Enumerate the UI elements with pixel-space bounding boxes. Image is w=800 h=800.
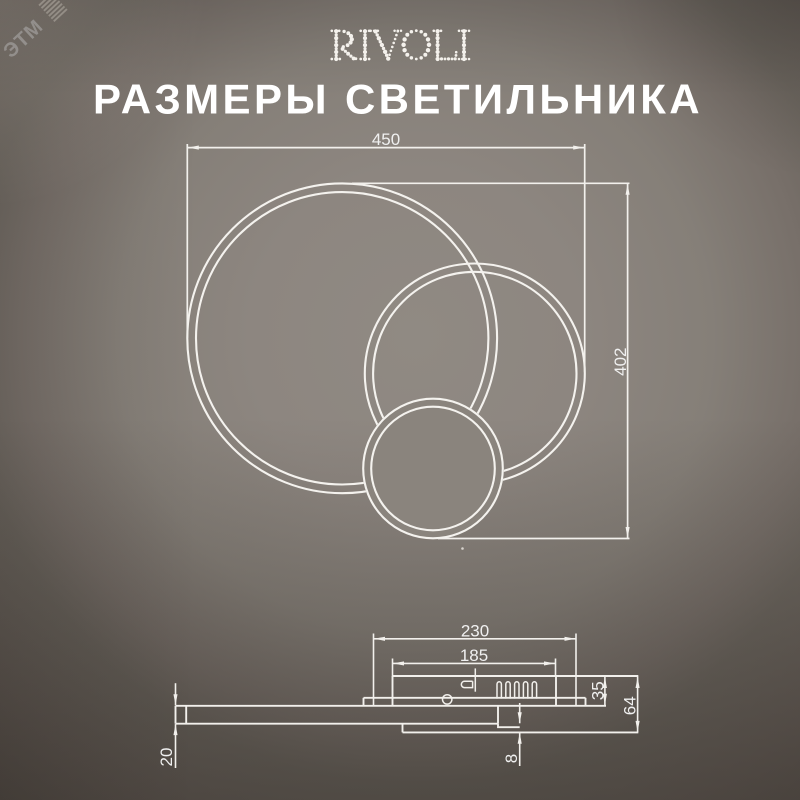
svg-text:РАЗМЕРЫ СВЕТИЛЬНИКА: РАЗМЕРЫ СВЕТИЛЬНИКА: [93, 76, 703, 123]
svg-text:64: 64: [620, 696, 639, 715]
svg-text:35: 35: [588, 681, 607, 700]
svg-text:20: 20: [157, 748, 176, 767]
svg-text:402: 402: [611, 348, 630, 376]
svg-text:450: 450: [372, 130, 400, 149]
svg-text:185: 185: [460, 646, 488, 665]
svg-text:230: 230: [461, 621, 489, 640]
svg-text:8: 8: [502, 754, 521, 763]
svg-text:ЭТМ: ЭТМ: [0, 16, 48, 63]
